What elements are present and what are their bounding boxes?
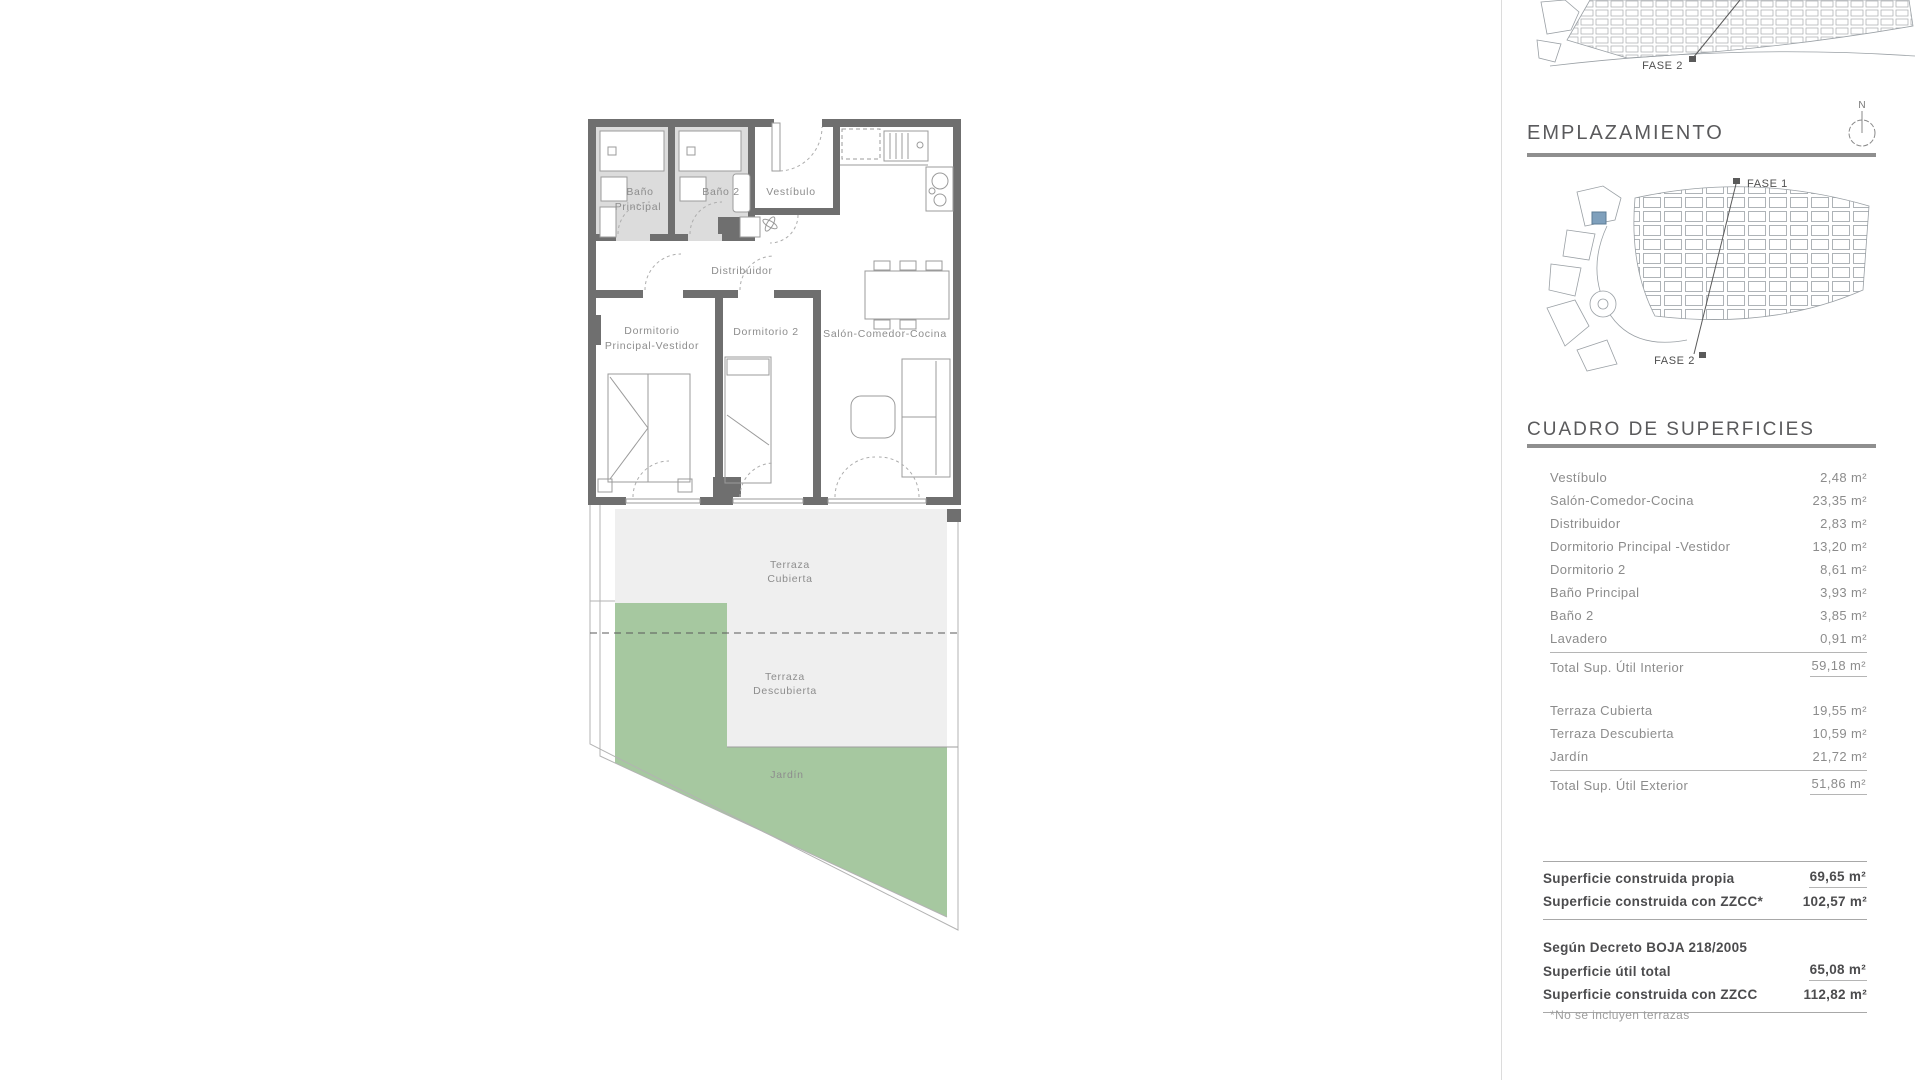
total-value: 51,86 m² [1810, 776, 1867, 795]
label-bano-principal: Baño [626, 186, 653, 198]
total-label: Total Sup. Útil Exterior [1550, 778, 1688, 793]
north-compass-icon: N [1842, 96, 1882, 152]
decreto-block: Según Decreto BOJA 218/2005 Superficie ú… [1543, 934, 1867, 1013]
buildings-band [1567, 0, 1913, 58]
table-row: Baño Principal 3,93 m² [1550, 581, 1867, 604]
label-bano2: Baño 2 [702, 186, 739, 198]
fase2-label: FASE 2 [1654, 355, 1695, 367]
row-value: 0,91 m² [1820, 631, 1867, 646]
label-dorm2: Dormitorio 2 [733, 326, 799, 338]
label-dorm-principal: Dormitorio [624, 325, 679, 337]
fase2-marker [1689, 56, 1696, 62]
furniture [598, 216, 950, 492]
row-label: Superficie útil total [1543, 964, 1671, 979]
map-left-buildings [1549, 186, 1621, 296]
top-map-fase2-label: FASE 2 [1642, 60, 1683, 72]
row-value: 69,65 m² [1809, 869, 1867, 888]
exterior-total-row: Total Sup. Útil Exterior 51,86 m² [1550, 770, 1867, 797]
row-label: Dormitorio 2 [1550, 562, 1626, 577]
table-row: Lavadero 0,91 m² [1550, 627, 1867, 650]
row-label: Terraza Descubierta [1550, 726, 1674, 741]
fase1-label: FASE 1 [1747, 178, 1788, 190]
emplazamiento-map: FASE 1 FASE 2 [1537, 168, 1882, 373]
row-label: Terraza Cubierta [1550, 703, 1653, 718]
coast-line [1550, 52, 1915, 66]
emplazamiento-underline [1527, 153, 1876, 157]
row-value: 2,48 m² [1820, 470, 1867, 485]
label-salon: Salón-Comedor-Cocina [823, 328, 947, 340]
row-label: Baño Principal [1550, 585, 1639, 600]
interior-total-row: Total Sup. Útil Interior 59,18 m² [1550, 652, 1867, 679]
highlighted-unit-marker [1592, 212, 1606, 224]
row-value: 65,08 m² [1809, 962, 1867, 981]
total-label: Total Sup. Útil Interior [1550, 660, 1684, 675]
table-row: Terraza Cubierta 19,55 m² [1550, 699, 1867, 722]
label-terraza-cubierta-2: Cubierta [767, 573, 812, 585]
row-value: 19,55 m² [1812, 703, 1867, 718]
kitchen [840, 129, 953, 211]
row-value: 23,35 m² [1812, 493, 1867, 508]
dining-table [865, 271, 949, 319]
row-label: Salón-Comedor-Cocina [1550, 493, 1694, 508]
row-value: 10,59 m² [1812, 726, 1867, 741]
table-row: Jardín 21,72 m² [1550, 745, 1867, 768]
table-row: Dormitorio 2 8,61 m² [1550, 558, 1867, 581]
table-row: Superficie construida propia 69,65 m² [1543, 867, 1867, 890]
label-dorm-principal-2: Principal-Vestidor [605, 340, 699, 352]
panel-divider [1501, 0, 1502, 1080]
label-bano-principal-2: Principal [615, 201, 662, 213]
table-row: Superficie construida con ZZCC 112,82 m² [1543, 983, 1867, 1006]
row-label: Superficie construida propia [1543, 871, 1734, 886]
entry-door-leaf [772, 123, 780, 171]
row-label: Baño 2 [1550, 608, 1594, 623]
row-label: Dormitorio Principal -Vestidor [1550, 539, 1730, 554]
row-label: Vestíbulo [1550, 470, 1607, 485]
table-row: Baño 2 3,85 m² [1550, 604, 1867, 627]
fan-symbol [762, 216, 779, 233]
row-value: 2,83 m² [1820, 516, 1867, 531]
decreto-heading: Según Decreto BOJA 218/2005 [1543, 934, 1867, 960]
cuadro-title: CUADRO DE SUPERFICIES [1527, 419, 1815, 441]
label-terraza-descubierta-2: Descubierta [753, 685, 817, 697]
fase1-marker [1733, 178, 1740, 184]
table-row: Dormitorio Principal -Vestidor 13,20 m² [1550, 535, 1867, 558]
exterior-surfaces-table: Terraza Cubierta 19,55 m² Terraza Descub… [1550, 699, 1867, 797]
row-value: 21,72 m² [1812, 749, 1867, 764]
label-vestibulo: Vestíbulo [766, 186, 816, 198]
label-distribuidor: Distribuidor [711, 265, 773, 277]
table-row: Superficie construida con ZZCC* 102,57 m… [1543, 890, 1867, 913]
interior-surfaces-table: Vestíbulo 2,48 m² Salón-Comedor-Cocina 2… [1550, 466, 1867, 679]
row-label: Distribuidor [1550, 516, 1621, 531]
top-site-map: FASE 2 [1535, 0, 1917, 80]
row-label: Superficie construida con ZZCC [1543, 987, 1758, 1002]
row-value: 3,85 m² [1820, 608, 1867, 623]
cuadro-underline [1527, 444, 1876, 448]
row-value: 3,93 m² [1820, 585, 1867, 600]
total-value: 59,18 m² [1810, 658, 1867, 677]
row-value: 13,20 m² [1812, 539, 1867, 554]
brochure-page: { "floor_plan": { "rooms": { "bano_princ… [0, 0, 1920, 1080]
row-label: Lavadero [1550, 631, 1607, 646]
table-row: Terraza Descubierta 10,59 m² [1550, 722, 1867, 745]
fase2-marker [1699, 352, 1706, 358]
table-row: Superficie útil total 65,08 m² [1543, 960, 1867, 983]
table-row: Distribuidor 2,83 m² [1550, 512, 1867, 535]
row-label: Jardín [1550, 749, 1589, 764]
label-terraza-cubierta: Terraza [770, 559, 810, 571]
floor-plan-drawing: Baño Principal Baño 2 Vestíbulo Distribu… [588, 119, 961, 931]
row-value: 102,57 m² [1803, 894, 1867, 909]
map-buildings-band [1634, 187, 1869, 320]
map-roundabout [1590, 291, 1616, 317]
row-value: 112,82 m² [1804, 987, 1868, 1002]
row-label: Superficie construida con ZZCC* [1543, 894, 1763, 909]
table-row: Vestíbulo 2,48 m² [1550, 466, 1867, 489]
built-surface-block: Superficie construida propia 69,65 m² Su… [1543, 861, 1867, 920]
label-jardin: Jardín [770, 769, 803, 781]
armchair [851, 396, 895, 438]
row-value: 8,61 m² [1820, 562, 1867, 577]
emplazamiento-title: EMPLAZAMIENTO [1527, 122, 1724, 145]
label-terraza-descubierta: Terraza [765, 671, 805, 683]
sofa [902, 359, 950, 477]
footnote: *No se incluyen terrazas [1550, 1008, 1690, 1022]
north-letter: N [1858, 100, 1865, 111]
table-row: Salón-Comedor-Cocina 23,35 m² [1550, 489, 1867, 512]
